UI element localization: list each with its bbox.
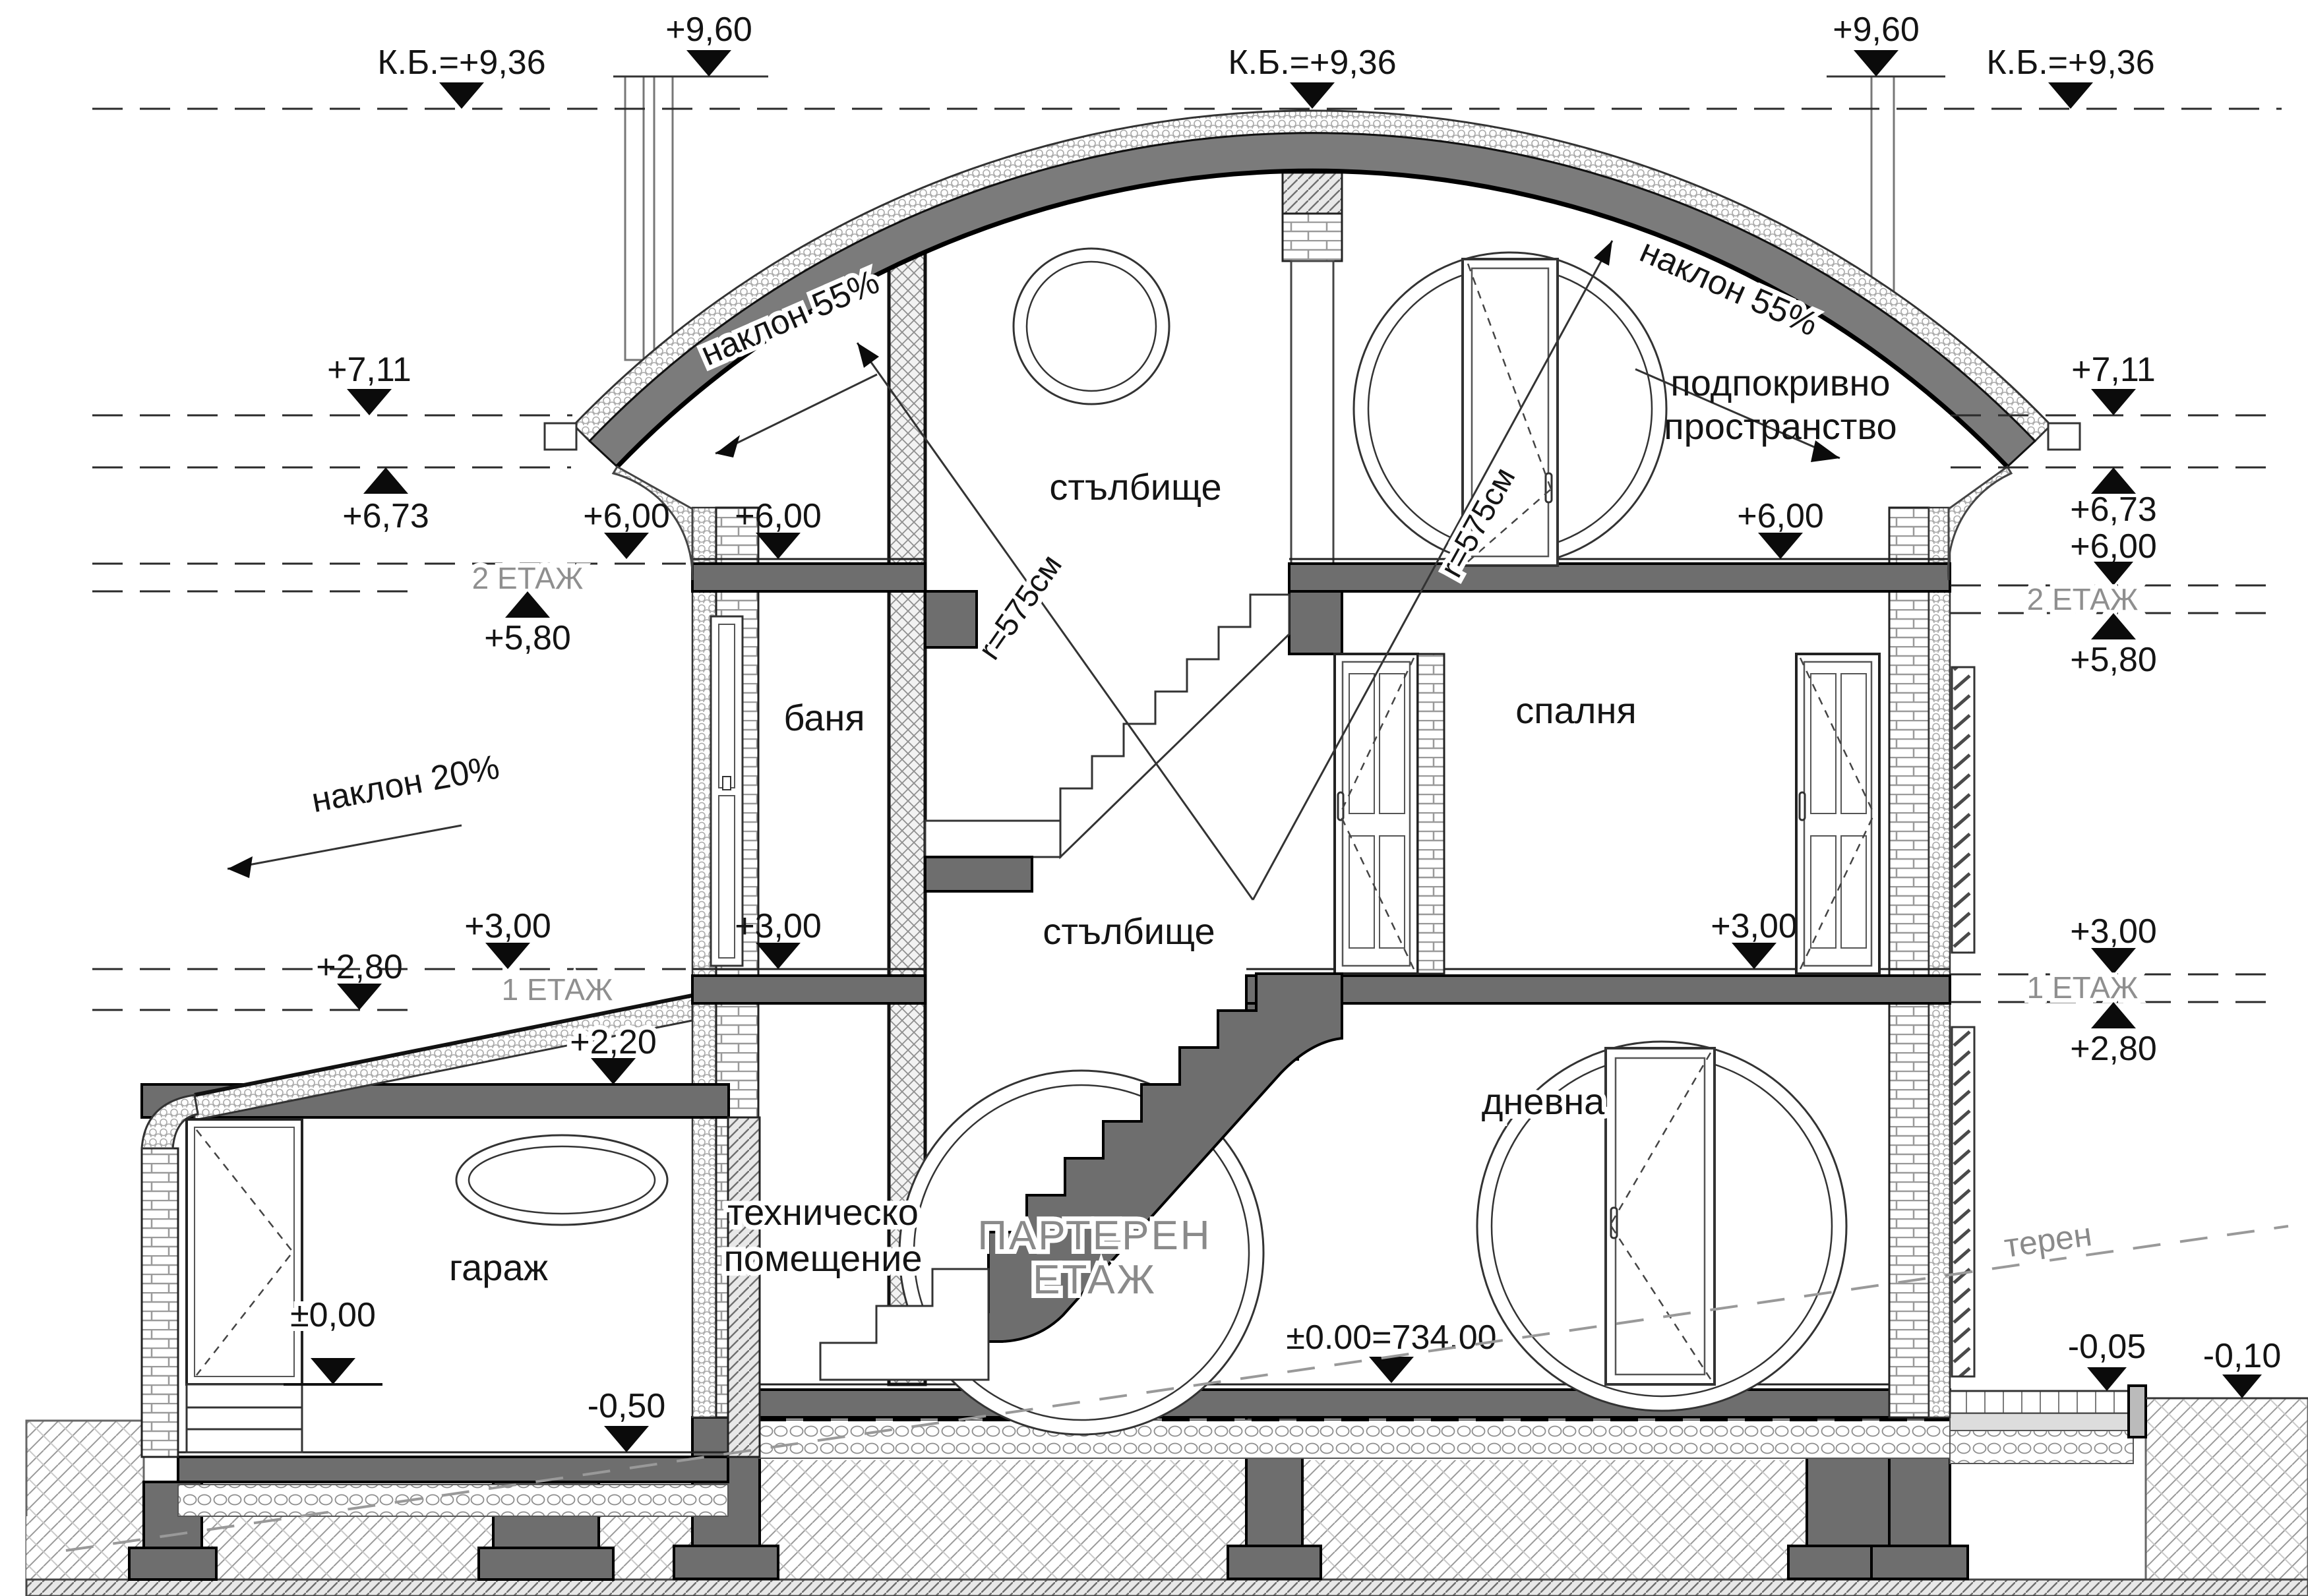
floor-label-ground-1: ПАРТЕРЕН — [977, 1213, 1211, 1258]
svg-text:+2,20: +2,20 — [570, 1023, 657, 1061]
svg-text:+6,00: +6,00 — [1737, 497, 1824, 535]
svg-text:К.Б.=+9,36: К.Б.=+9,36 — [377, 44, 545, 82]
floor-label-ground-2: ЕТАЖ — [1033, 1257, 1157, 1303]
svg-text:+3,00: +3,00 — [2070, 912, 2157, 951]
garage-threshold-steps — [187, 1384, 302, 1452]
section-drawing: r=575см r=575см наклон 55% наклон 55% на… — [0, 0, 2308, 1596]
svg-text:+6,00: +6,00 — [735, 497, 822, 535]
svg-text:+6,73: +6,73 — [2070, 490, 2157, 529]
svg-text:±0,00: ±0,00 — [290, 1296, 376, 1334]
svg-text:+5,80: +5,80 — [484, 619, 571, 657]
bedroom-door-left — [1335, 654, 1444, 974]
gutter-right — [2048, 423, 2080, 450]
floor1-label-left: 1 ЕТАЖ — [502, 972, 613, 1007]
door-handle — [1611, 1208, 1617, 1238]
svg-text:К.Б.=+9,36: К.Б.=+9,36 — [1986, 44, 2154, 82]
svg-text:-0,05: -0,05 — [2068, 1328, 2146, 1366]
footing-pad — [129, 1548, 216, 1580]
svg-text:-0,10: -0,10 — [2203, 1337, 2282, 1375]
floor2-label-right: 2 ЕТАЖ — [2027, 582, 2139, 616]
room-label-stairs-top: стълбище — [1049, 466, 1221, 508]
room-label-bedroom: спалня — [1515, 690, 1636, 731]
svg-text:+2,80: +2,80 — [316, 948, 403, 986]
gutter-left — [545, 423, 576, 450]
svg-text:-0,50: -0,50 — [588, 1387, 666, 1425]
garage-door — [187, 1119, 302, 1384]
room-label-stairs-mid: стълбище — [1043, 910, 1215, 952]
stair-landing-slab — [925, 857, 1032, 891]
living-door — [1606, 1048, 1715, 1384]
garage-partition-wall — [728, 1117, 760, 1457]
stair-landing — [925, 821, 1060, 857]
door-handle — [1338, 792, 1343, 820]
room-label-tech-2: помещение — [723, 1237, 922, 1279]
svg-text:+6,00: +6,00 — [2070, 527, 2157, 566]
door-handle — [1800, 792, 1805, 820]
garage-wall-left — [142, 1148, 178, 1457]
curb — [2129, 1386, 2146, 1437]
room-label-bath: баня — [783, 697, 865, 738]
svg-text:+9,60: +9,60 — [665, 11, 752, 49]
attic-round-window-right — [1354, 252, 1666, 566]
room-label-tech-1: техническо — [727, 1191, 919, 1233]
room-label-attic-2: пространство — [1664, 405, 1897, 447]
floor-slab-garage — [178, 1452, 728, 1516]
svg-text:+3,00: +3,00 — [1711, 907, 1798, 945]
svg-text:+6,00: +6,00 — [583, 497, 670, 535]
svg-text:+5,80: +5,80 — [2070, 641, 2157, 679]
floor-slab-ground — [758, 1384, 1950, 1458]
svg-text:+3,00: +3,00 — [735, 907, 822, 945]
footing-pad — [1228, 1546, 1321, 1579]
door-pier-brick — [1418, 654, 1444, 974]
louver-panel-lower — [1952, 1027, 1974, 1376]
louver-panel-upper — [1952, 667, 1974, 953]
garage-oval-window — [456, 1135, 667, 1225]
attic-round-window-left — [1014, 249, 1169, 404]
room-label-living: дневна — [1482, 1080, 1605, 1122]
svg-text:±0.00=734.00: ±0.00=734.00 — [1286, 1318, 1496, 1357]
svg-text:+6,73: +6,73 — [342, 497, 429, 535]
footing-pad — [674, 1546, 778, 1579]
window-handle — [723, 777, 731, 790]
bedroom-door-right — [1796, 654, 1879, 974]
room-label-garage: гараж — [449, 1247, 549, 1288]
svg-text:+7,11: +7,11 — [327, 351, 411, 389]
svg-text:К.Б.=+9,36: К.Б.=+9,36 — [1228, 44, 1396, 82]
footing-pad — [479, 1548, 613, 1580]
svg-text:+9,60: +9,60 — [1833, 11, 1920, 49]
floor1-label-right: 1 ЕТАЖ — [2027, 970, 2139, 1005]
floor2-label-left: 2 ЕТАЖ — [472, 561, 584, 595]
svg-text:+2,80: +2,80 — [2070, 1030, 2157, 1068]
svg-text:+7,11: +7,11 — [2071, 351, 2156, 389]
svg-text:+3,00: +3,00 — [464, 907, 551, 945]
wall-insulation — [1929, 508, 1950, 1417]
room-label-attic-1: подпокривно — [1670, 362, 1890, 403]
apex-pier — [1283, 173, 1342, 564]
footing-pad — [1871, 1546, 1968, 1579]
